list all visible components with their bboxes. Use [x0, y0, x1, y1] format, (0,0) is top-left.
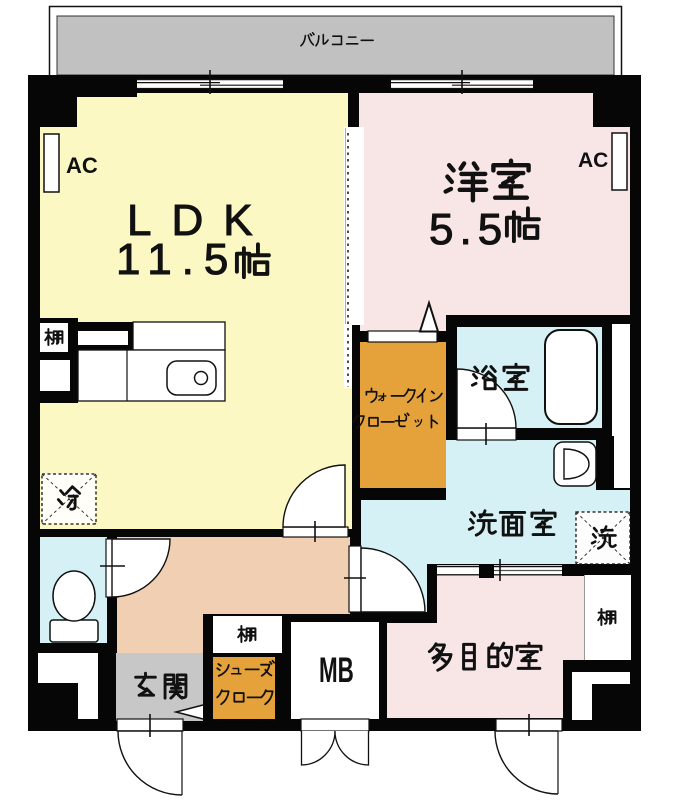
svg-text:11.5: 11.5 — [116, 235, 238, 284]
svg-text:MB: MB — [319, 651, 354, 690]
svg-text:AC: AC — [66, 153, 98, 178]
svg-text:5.5: 5.5 — [429, 205, 508, 254]
svg-text:AC: AC — [578, 149, 608, 172]
